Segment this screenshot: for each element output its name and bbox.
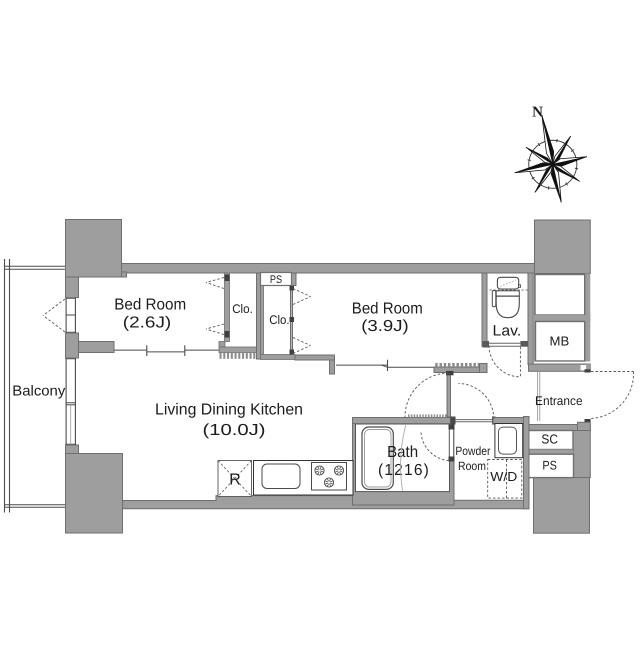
- svg-text:SC: SC: [541, 432, 558, 447]
- svg-text:Bed Room: Bed Room: [114, 297, 186, 314]
- svg-text:Lav.: Lav.: [493, 322, 522, 339]
- svg-text:Clo.: Clo.: [232, 302, 253, 316]
- svg-text:PS: PS: [270, 274, 282, 286]
- svg-text:N: N: [532, 105, 543, 121]
- svg-text:(2.6J): (2.6J): [123, 314, 172, 331]
- svg-text:(10.0J): (10.0J): [203, 422, 266, 439]
- svg-text:Entrance: Entrance: [535, 394, 583, 408]
- svg-text:Clo.: Clo.: [269, 313, 289, 327]
- svg-text:(3.9J): (3.9J): [361, 318, 409, 335]
- svg-text:Balcony: Balcony: [12, 384, 66, 400]
- svg-text:R: R: [229, 472, 241, 489]
- svg-text:W/D: W/D: [490, 469, 517, 484]
- svg-text:Powder: Powder: [455, 444, 490, 458]
- svg-text:(1216): (1216): [378, 462, 430, 479]
- svg-text:Room: Room: [458, 459, 486, 473]
- svg-text:Bath: Bath: [387, 444, 418, 461]
- svg-text:MB: MB: [550, 334, 570, 349]
- svg-text:Living Dining Kitchen: Living Dining Kitchen: [155, 402, 303, 419]
- svg-text:PS: PS: [542, 459, 557, 473]
- svg-text:Bed Room: Bed Room: [352, 301, 423, 318]
